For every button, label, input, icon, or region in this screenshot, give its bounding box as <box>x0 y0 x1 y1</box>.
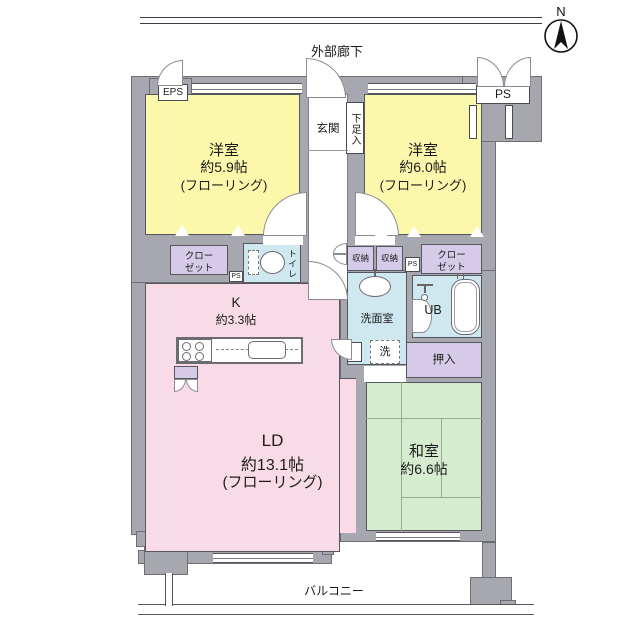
japanese-room-size: 約6.6帖 <box>366 459 482 479</box>
window-japanese-room <box>376 532 460 541</box>
ps-door-arc <box>504 57 531 87</box>
ps-vent-slot <box>469 105 477 139</box>
closet-door-marker <box>470 226 484 237</box>
ps-small-right-label: PS <box>405 257 420 272</box>
closet-door-marker <box>407 226 421 237</box>
compass-north-icon: N <box>538 3 584 57</box>
balcony-label: バルコニー <box>284 582 384 599</box>
corridor-label: 外部廊下 <box>287 41 387 60</box>
bath-drain <box>421 294 428 301</box>
japanese-room-name: 和室 <box>366 440 482 461</box>
corridor-line <box>140 17 542 24</box>
entrance-label: 玄関 <box>306 120 350 136</box>
shoe-cabinet-label: 下足入 <box>349 105 362 153</box>
washroom-label: 洗面室 <box>347 310 407 326</box>
toilet-tank <box>248 250 259 275</box>
balcony-rail-left <box>165 573 173 606</box>
entrance-step-line <box>308 150 348 151</box>
stove-burner <box>195 352 204 361</box>
compass-n-label: N <box>556 4 565 19</box>
shower-tick <box>457 273 458 279</box>
eps-door-arc <box>157 60 183 86</box>
closet-door-marker <box>231 225 245 236</box>
toilet-label: トイレ <box>288 246 299 281</box>
stove-burner <box>182 342 191 351</box>
stove-burner <box>182 352 191 361</box>
stove-burner <box>195 342 204 351</box>
ps-vent-slot <box>505 105 513 139</box>
closet-door-marker <box>175 225 189 236</box>
passage-gap <box>364 366 406 382</box>
bedroom-right-size: 約6.0帖 <box>362 157 484 177</box>
balcony-rail-bottom <box>138 604 534 615</box>
sink-tap <box>374 269 376 277</box>
toilet-bowl <box>260 251 285 274</box>
bathtub-inner <box>454 282 477 332</box>
bedroom-left-size: 約5.9帖 <box>145 157 303 177</box>
window-bedroom-right <box>368 83 476 94</box>
bedroom-right-note: (フローリング) <box>362 175 484 194</box>
ps-small-left-label: PS <box>229 271 243 282</box>
kitchen-name: K <box>180 295 292 310</box>
eps-label: EPS <box>158 84 188 101</box>
floor-plan: 外部廊下 N <box>0 0 640 640</box>
living-name: LD <box>200 431 345 451</box>
closet-door-marker <box>374 226 388 237</box>
storage-b-label: 収納 <box>376 252 403 264</box>
kitchen-sink <box>248 341 286 359</box>
tatami-line <box>366 418 482 419</box>
window-bedroom-left <box>192 83 302 94</box>
bath-faucet-stem <box>424 286 426 293</box>
closet-right-line2: ゼット <box>421 259 482 273</box>
entrance-door-arc <box>306 58 346 98</box>
ps-label: PS <box>476 85 530 104</box>
bath-label: UB <box>412 303 454 317</box>
window-living <box>213 553 313 563</box>
living-note: (フローリング) <box>200 471 345 492</box>
sink-basin <box>359 276 391 297</box>
kitchen-mini-closet <box>174 366 198 379</box>
oshiire-label: 押入 <box>406 351 482 367</box>
washer-label: 洗 <box>370 340 400 364</box>
bedroom-left-note: (フローリング) <box>145 175 303 194</box>
kitchen-size: 約3.3帖 <box>180 311 292 328</box>
storage-a-label: 収納 <box>347 252 374 264</box>
closet-left-line2: ゼット <box>170 260 228 274</box>
shower-tick <box>463 273 464 279</box>
ps-door-arc <box>477 57 504 87</box>
tatami-line <box>401 497 482 498</box>
